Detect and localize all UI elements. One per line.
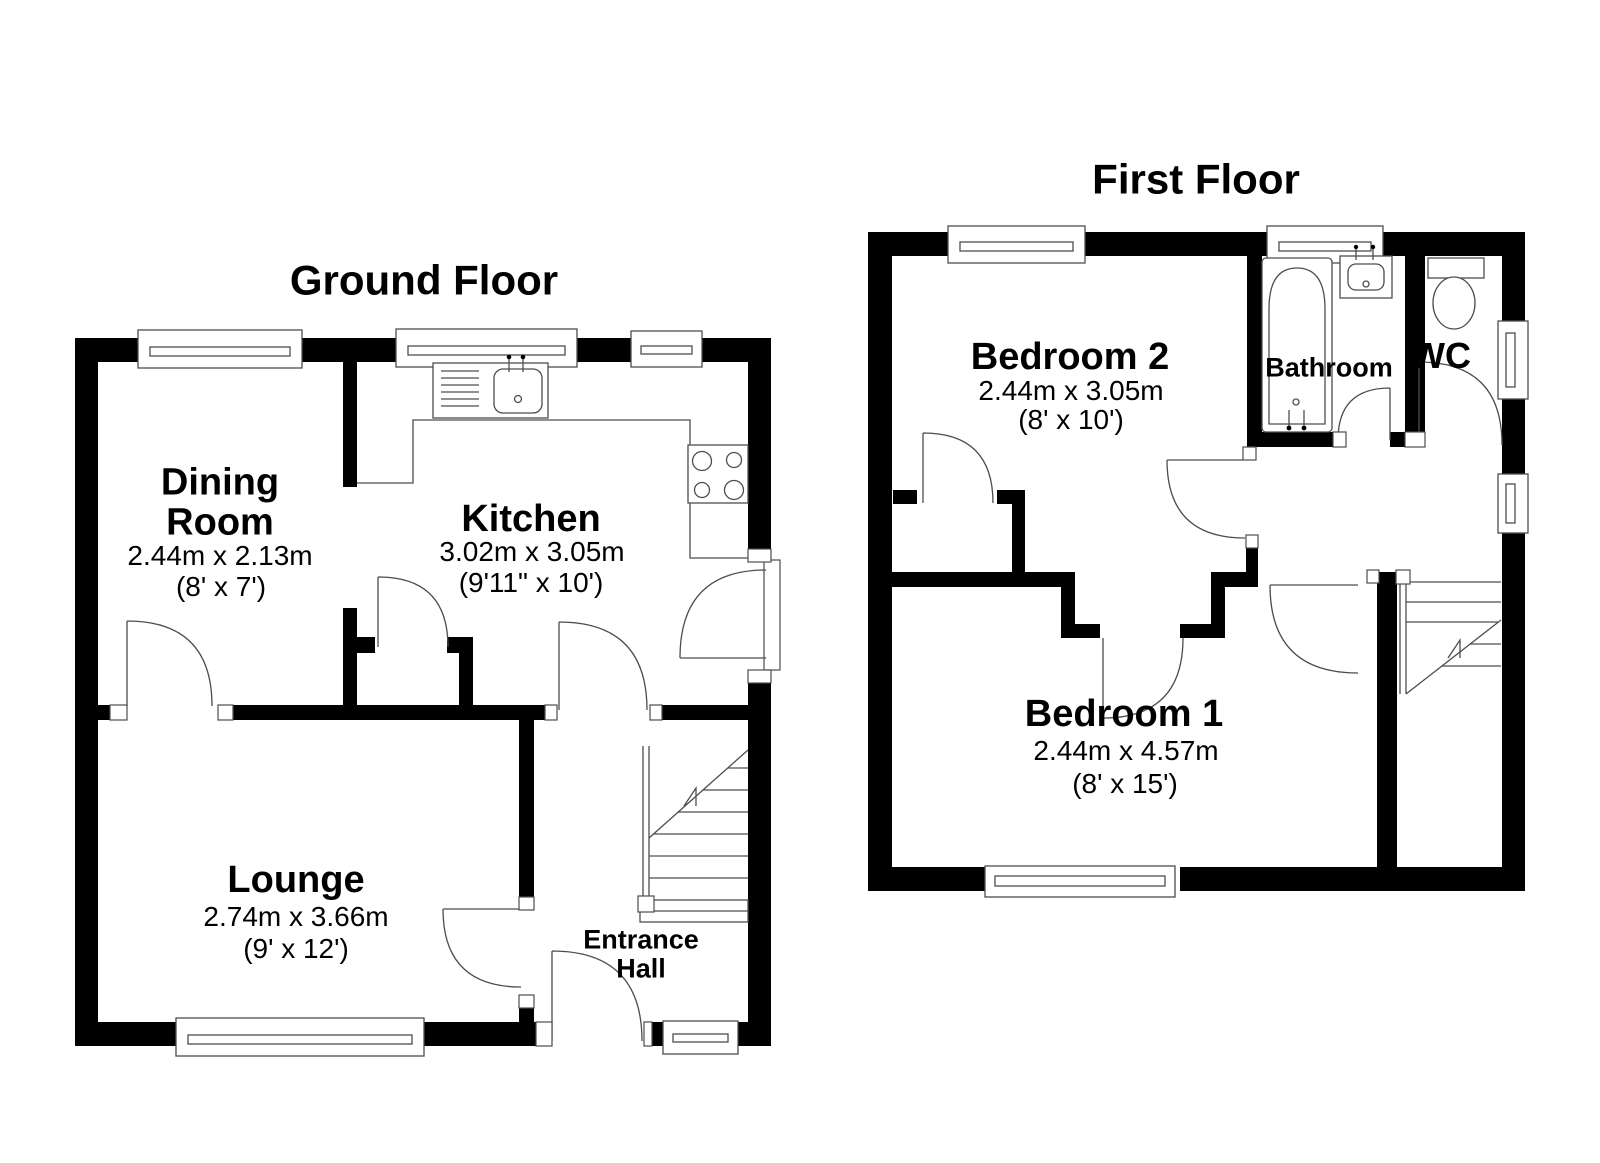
- room-name: Entrance: [583, 925, 699, 954]
- hob: [688, 445, 748, 503]
- first-floor-door-jambs: [1243, 432, 1425, 583]
- room-dimensions-metric: 2.44m x 3.05m: [978, 376, 1163, 406]
- wall-segment: [218, 705, 545, 720]
- wall-segment: [1377, 572, 1397, 867]
- landing-side-window: [1498, 474, 1528, 533]
- lounge-hall-door: [443, 909, 521, 987]
- wall-segment: [892, 572, 1061, 587]
- wall-segment: [1246, 548, 1258, 574]
- wall-segment: [519, 720, 534, 897]
- room-name: Room: [161, 503, 279, 543]
- kitchen-sink: [433, 355, 548, 418]
- wall-segment: [1390, 432, 1405, 447]
- wall-segment: [575, 338, 633, 362]
- bedroom2-closet-door: [923, 433, 993, 503]
- wc-side-window: [1498, 321, 1528, 399]
- room-dimensions-imperial: (8' x 15'): [1072, 769, 1178, 799]
- wall-segment: [893, 490, 917, 504]
- wall-segment: [1085, 232, 1267, 256]
- first-floor-plan: [868, 226, 1528, 897]
- wall-segment: [300, 338, 398, 362]
- wall-segment: [868, 232, 892, 891]
- back-door: [680, 560, 780, 670]
- room-label-dining: Dining Room: [161, 463, 279, 544]
- room-label-wc: WC: [1411, 337, 1471, 375]
- wall-segment: [1180, 624, 1211, 638]
- hall-window: [663, 1021, 738, 1054]
- kitchen-cupboard-door: [378, 577, 448, 647]
- ground-floor-title: Ground Floor: [290, 259, 558, 304]
- wall-segment: [75, 338, 140, 362]
- room-dimensions-imperial: (8' x 7'): [176, 572, 266, 602]
- kitchen-hall-door: [559, 622, 647, 710]
- wall-segment: [748, 338, 771, 562]
- room-label-entrance-hall: Entrance Hall: [583, 925, 699, 982]
- wall-segment: [343, 362, 357, 487]
- bath: [1262, 258, 1332, 432]
- wall-segment: [1061, 572, 1075, 638]
- first-floor-title: First Floor: [1092, 158, 1300, 203]
- room-dimensions-metric: 2.44m x 2.13m: [127, 541, 312, 571]
- wall-segment: [1012, 490, 1025, 572]
- wall-segment: [1502, 393, 1525, 480]
- bedroom1-window: [985, 866, 1175, 897]
- room-label-bedroom1: Bedroom 1: [1025, 694, 1223, 734]
- wall-segment: [357, 637, 375, 653]
- newel-post: [638, 896, 654, 912]
- room-label-bedroom2: Bedroom 2: [971, 337, 1169, 377]
- kitchen-small-window: [631, 331, 702, 367]
- room-label-kitchen: Kitchen: [461, 499, 600, 539]
- room-dimensions-imperial: (9'11" x 10'): [459, 568, 604, 598]
- newel-post: [1396, 570, 1410, 584]
- wall-segment: [1225, 572, 1258, 587]
- wall-segment: [1247, 432, 1333, 447]
- room-dimensions-metric: 2.74m x 3.66m: [203, 902, 388, 932]
- wall-segment: [75, 1022, 180, 1046]
- room-dimensions-imperial: (9' x 12'): [243, 934, 349, 964]
- stairs-door: [1270, 585, 1358, 673]
- room-label-bathroom: Bathroom: [1265, 354, 1393, 383]
- first-floor-walls: [868, 232, 1525, 891]
- room-label-lounge: Lounge: [227, 860, 364, 900]
- dining-window: [138, 330, 302, 368]
- room-name: Dining: [161, 463, 279, 503]
- room-dimensions-imperial: (8' x 10'): [1018, 405, 1124, 435]
- wall-segment: [1075, 624, 1100, 638]
- wall-segment: [519, 1008, 534, 1022]
- wall-segment: [662, 705, 748, 720]
- lounge-window: [176, 1018, 424, 1056]
- wall-segment: [736, 1022, 771, 1046]
- first-floor-stairs: [1396, 570, 1501, 694]
- wall-segment: [1502, 232, 1525, 327]
- room-dimensions-metric: 3.02m x 3.05m: [439, 537, 624, 567]
- wall-segment: [1247, 256, 1262, 447]
- kitchen-window: [396, 329, 577, 367]
- bedroom2-door: [1167, 460, 1245, 538]
- wall-segment: [748, 670, 771, 1046]
- wall-segment: [75, 338, 98, 1046]
- first-floor-windows: [948, 226, 1528, 897]
- ground-floor-stairs: [638, 746, 748, 922]
- wall-segment: [1211, 572, 1225, 638]
- wall-segment: [1502, 527, 1525, 891]
- wall-segment: [420, 1022, 536, 1046]
- wall-segment: [343, 608, 357, 720]
- wall-segment: [447, 637, 473, 653]
- wall-segment: [1180, 867, 1525, 891]
- room-dimensions-metric: 2.44m x 4.57m: [1033, 736, 1218, 766]
- wall-segment: [868, 232, 948, 256]
- floorplan-page: Ground Floor First Floor Dining Room 2.4…: [0, 0, 1600, 1163]
- toilet: [1428, 258, 1484, 329]
- wall-segment: [868, 867, 986, 891]
- bedroom2-window: [948, 226, 1085, 263]
- dining-lounge-door: [127, 621, 212, 706]
- room-name: Hall: [583, 954, 699, 983]
